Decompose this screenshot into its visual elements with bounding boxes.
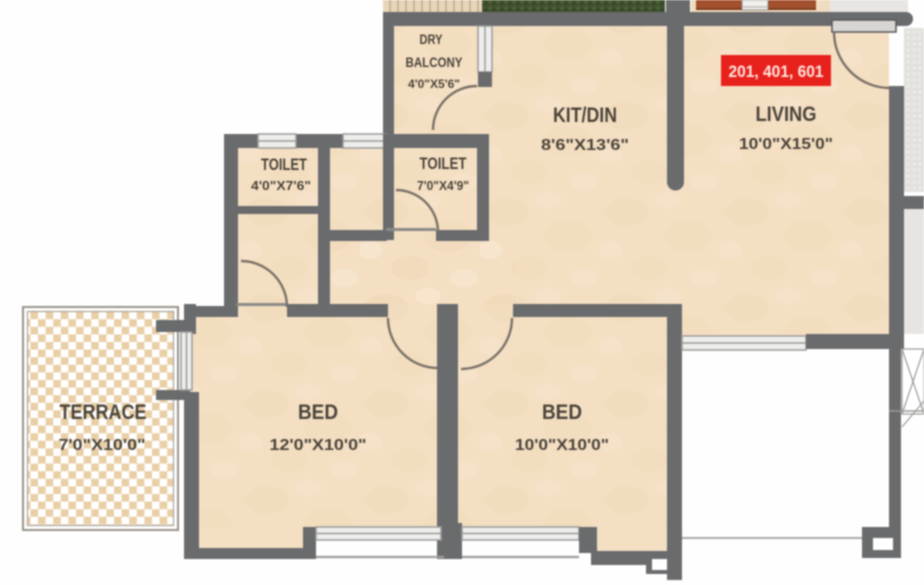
svg-text:7'0"X4'9": 7'0"X4'9": [417, 178, 469, 193]
svg-text:BED: BED: [298, 401, 338, 424]
svg-text:DRY: DRY: [420, 32, 443, 47]
svg-text:8'6"X13'6": 8'6"X13'6": [541, 137, 629, 154]
svg-text:TERRACE: TERRACE: [60, 401, 147, 424]
svg-text:BALCONY: BALCONY: [406, 55, 463, 70]
svg-text:201, 401, 601: 201, 401, 601: [729, 63, 824, 81]
svg-text:TOILET: TOILET: [420, 155, 467, 173]
svg-text:12'0"X10'0": 12'0"X10'0": [270, 437, 367, 454]
svg-text:4'0"X5'6": 4'0"X5'6": [408, 79, 460, 91]
svg-text:7'0"X10'0": 7'0"X10'0": [59, 437, 146, 454]
svg-text:KIT/DIN: KIT/DIN: [553, 104, 617, 127]
svg-text:10'0"X15'0": 10'0"X15'0": [739, 136, 833, 153]
svg-text:BED: BED: [542, 401, 582, 424]
svg-text:10'0"X10'0": 10'0"X10'0": [515, 437, 609, 454]
svg-text:TOILET: TOILET: [261, 156, 307, 174]
svg-text:LIVING: LIVING: [756, 103, 817, 126]
svg-text:4'0"X7'6": 4'0"X7'6": [251, 178, 311, 193]
